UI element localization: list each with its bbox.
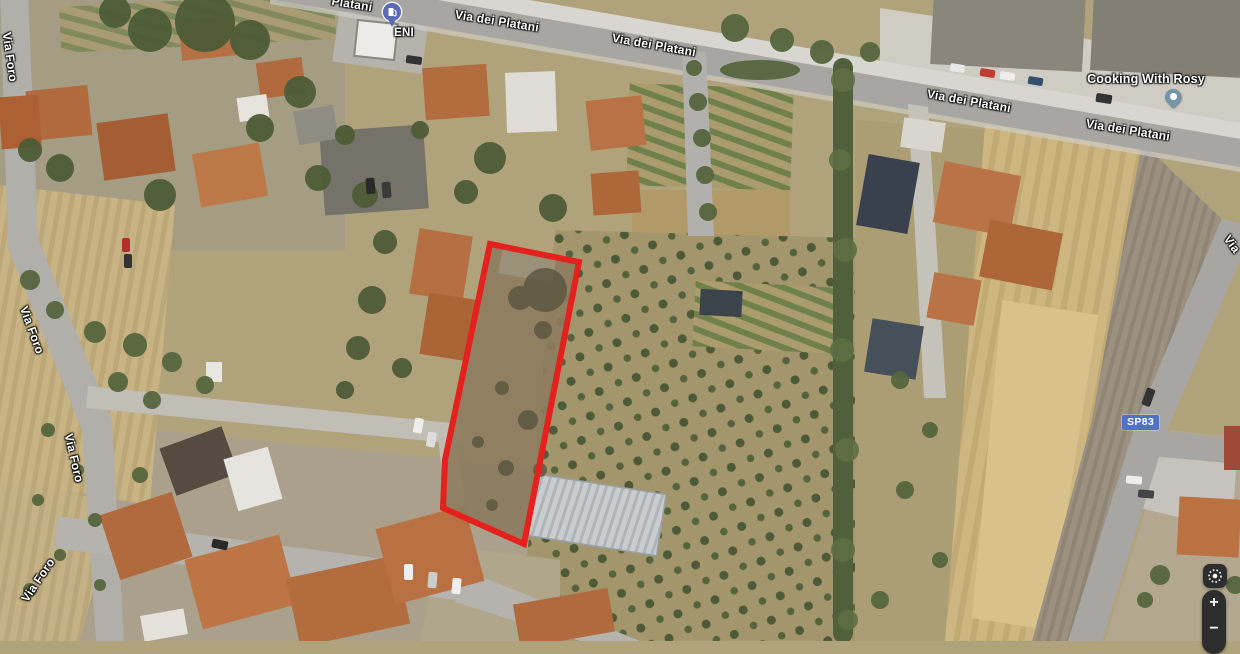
compass-button[interactable] [1203,564,1227,588]
zoom-out-button[interactable]: − [1202,616,1226,642]
pin-tail [388,19,396,27]
route-badge-sp83: SP83 [1122,415,1159,430]
map-canvas[interactable]: Platani Via dei Platani Via dei Platani … [0,0,1240,641]
zoom-in-button[interactable]: + [1202,590,1226,616]
compass-icon [1207,568,1223,584]
satellite-imagery [0,0,1240,641]
zoom-control: + − [1202,590,1226,654]
poi-pin-cooking-with-rosy[interactable] [1164,88,1182,112]
gas-station-pin-eni[interactable] [383,3,401,29]
